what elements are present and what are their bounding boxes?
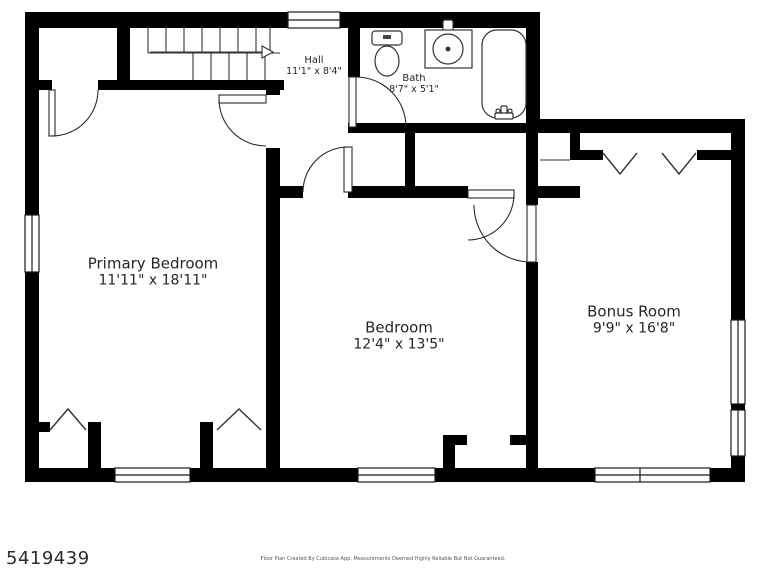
window-right-bonus-lower bbox=[731, 410, 745, 456]
window-bottom-bedroom bbox=[358, 468, 435, 482]
wall-primary-divider-upper bbox=[266, 80, 280, 95]
wall-closet1-right bbox=[88, 422, 101, 468]
disclaimer-text: Floor Plan Created By Cubicasa App. Meas… bbox=[261, 556, 506, 562]
window-bottom-primary bbox=[115, 468, 190, 482]
wall-closet-stairs-divider bbox=[117, 26, 130, 80]
label-bedroom: Bedroom 12'4" x 13'5" bbox=[353, 319, 444, 352]
wall-closet3-left bbox=[443, 435, 455, 468]
window-left-primary bbox=[25, 215, 39, 272]
wall-below-closet-left bbox=[39, 80, 52, 90]
bonus-room-name: Bonus Room bbox=[587, 303, 681, 320]
wall-hall-bottom-left bbox=[266, 186, 303, 198]
floor-plan-page: Primary Bedroom 11'11" x 18'11" Bedroom … bbox=[0, 0, 768, 576]
bedroom-dimensions: 12'4" x 13'5" bbox=[353, 337, 444, 353]
wall-bonus-top bbox=[526, 119, 745, 133]
window-right-bonus-upper bbox=[731, 320, 745, 404]
wall-bonus-knee-left bbox=[580, 150, 603, 160]
chevron-closet1 bbox=[50, 409, 86, 430]
wall-bath-bottom bbox=[348, 123, 540, 133]
toilet-icon bbox=[372, 31, 402, 76]
bathtub-icon bbox=[482, 30, 526, 119]
bath-fixtures bbox=[372, 20, 526, 119]
chevron-bonus-left bbox=[603, 153, 637, 174]
wall-top bbox=[25, 12, 540, 28]
wall-closet-left bbox=[405, 133, 415, 198]
chevron-bonus-right bbox=[662, 153, 696, 174]
wall-closet2-left bbox=[200, 422, 213, 468]
primary-bedroom-name: Primary Bedroom bbox=[88, 255, 219, 272]
label-bonus-room: Bonus Room 9'9" x 16'8" bbox=[587, 303, 681, 336]
wall-bonus-nook-stub bbox=[570, 133, 580, 160]
listing-number: 5419439 bbox=[6, 548, 90, 569]
label-hall: Hall 11'1" x 8'4" bbox=[286, 55, 342, 77]
label-bath: Bath 8'7" x 5'1" bbox=[389, 73, 439, 95]
door-bedroom bbox=[303, 147, 352, 192]
wall-bath-right bbox=[526, 12, 540, 133]
hall-dimensions: 11'1" x 8'4" bbox=[286, 66, 342, 77]
primary-bedroom-dimensions: 11'11" x 18'11" bbox=[88, 273, 219, 289]
wall-bath-left-upper bbox=[348, 12, 360, 77]
hall-name: Hall bbox=[286, 55, 342, 67]
wall-closet1-top-stub bbox=[39, 422, 50, 432]
chevron-closet2 bbox=[217, 409, 261, 430]
wall-bonus-divider-upper bbox=[526, 133, 538, 205]
window-top-hall bbox=[288, 12, 340, 28]
wall-bonus-divider-lower bbox=[526, 262, 538, 468]
door-bonus-room bbox=[474, 205, 536, 262]
bonus-room-dimensions: 9'9" x 16'8" bbox=[587, 321, 681, 337]
staircase bbox=[148, 26, 280, 80]
bedroom-name: Bedroom bbox=[353, 319, 444, 336]
wall-nook-bottom bbox=[538, 186, 580, 198]
bath-name: Bath bbox=[389, 73, 439, 85]
wall-closet3-stub-left bbox=[455, 435, 467, 445]
wall-below-stairs bbox=[98, 80, 284, 90]
wall-closet3-stub-right bbox=[510, 435, 526, 445]
walls bbox=[25, 12, 745, 482]
door-primary-bedroom bbox=[219, 95, 266, 146]
door-closet-topleft bbox=[49, 90, 98, 136]
label-primary-bedroom: Primary Bedroom 11'11" x 18'11" bbox=[88, 255, 219, 288]
wall-bonus-knee-right bbox=[697, 150, 731, 160]
window-bottom-bonus bbox=[595, 468, 710, 482]
bath-dimensions: 8'7" x 5'1" bbox=[389, 84, 439, 95]
